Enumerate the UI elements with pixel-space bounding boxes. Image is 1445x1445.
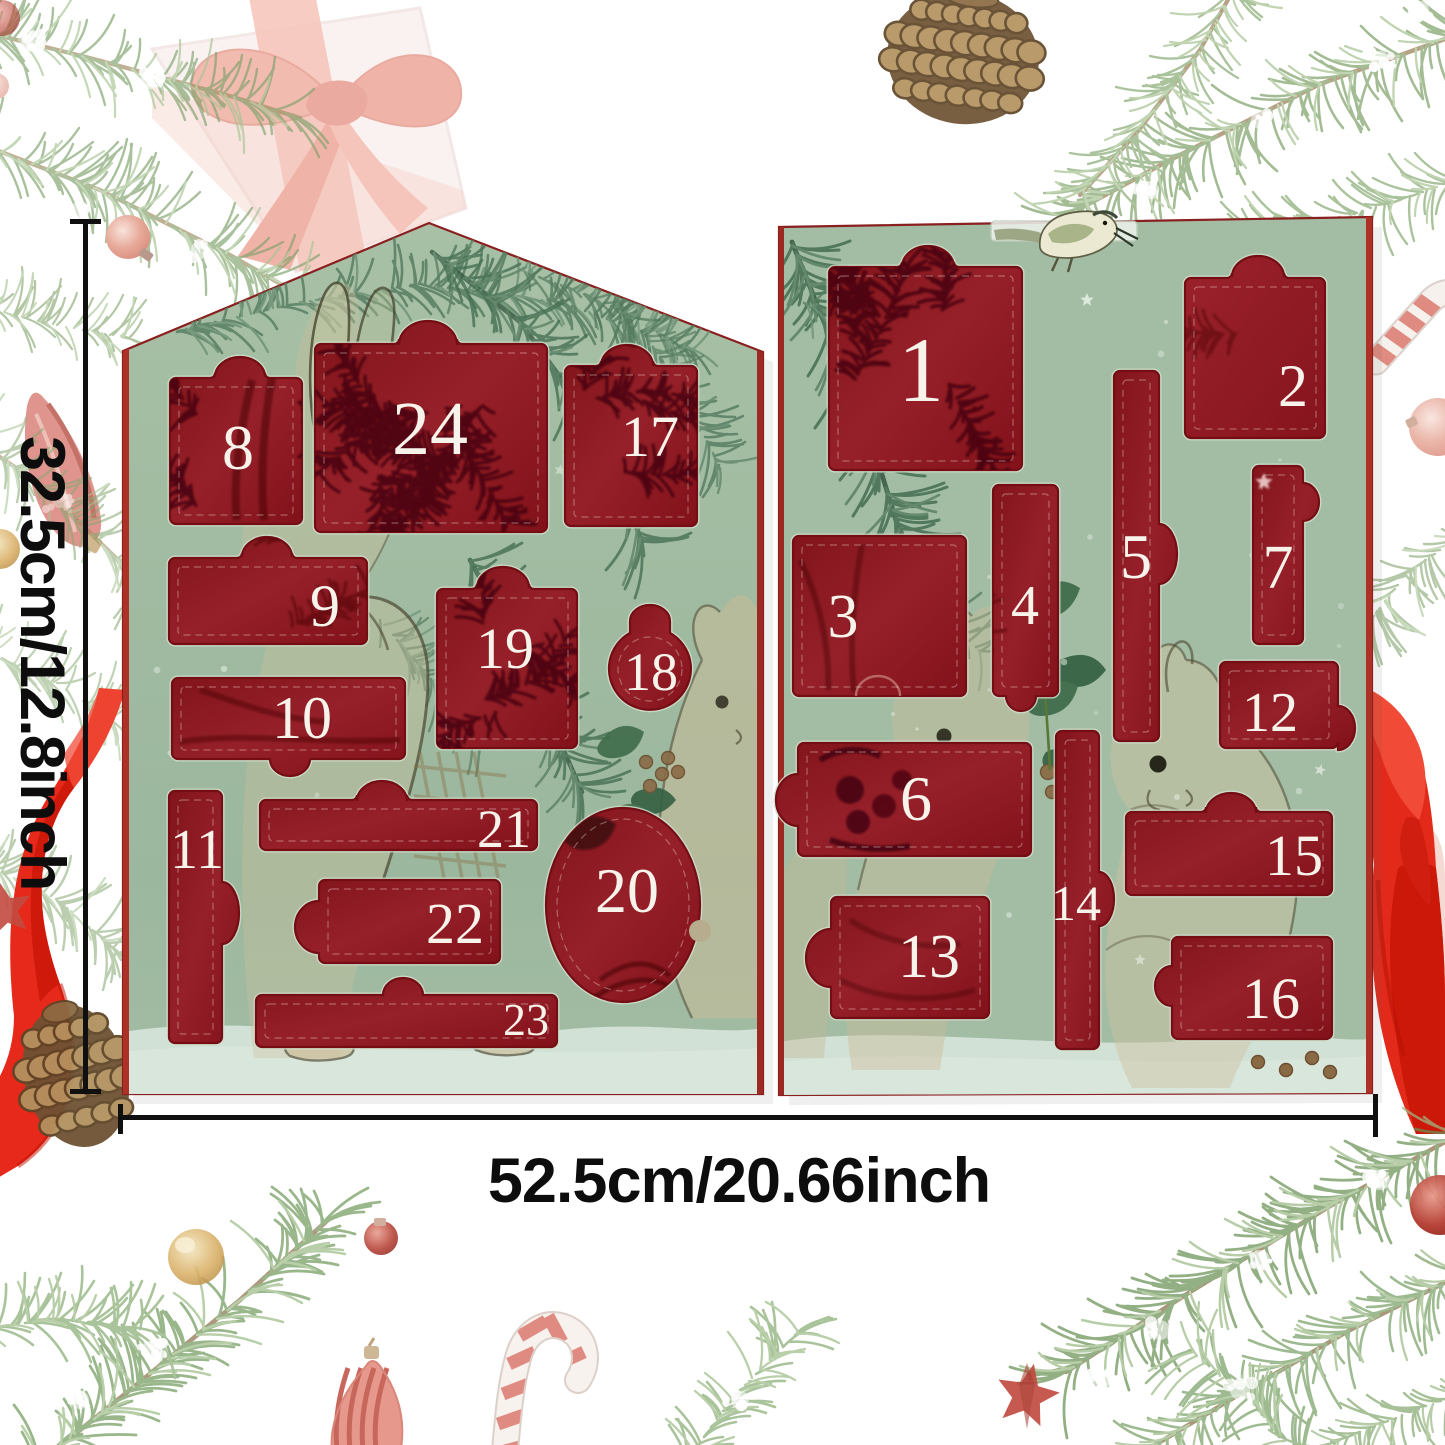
svg-text:8: 8 — [222, 412, 254, 483]
svg-text:4: 4 — [1011, 575, 1039, 637]
svg-text:14: 14 — [1051, 875, 1101, 931]
svg-text:15: 15 — [1265, 823, 1323, 888]
svg-text:1: 1 — [898, 319, 944, 421]
svg-text:21: 21 — [477, 799, 531, 859]
svg-text:24: 24 — [392, 387, 468, 471]
svg-text:2: 2 — [1278, 353, 1308, 419]
svg-text:16: 16 — [1242, 966, 1300, 1031]
svg-text:23: 23 — [503, 994, 549, 1045]
svg-text:13: 13 — [898, 923, 960, 991]
svg-text:11: 11 — [170, 819, 224, 881]
svg-text:5: 5 — [1120, 521, 1152, 592]
svg-text:22: 22 — [426, 891, 484, 956]
svg-text:10: 10 — [272, 685, 332, 751]
svg-text:32.5cm/12.8inch: 32.5cm/12.8inch — [7, 436, 77, 889]
svg-text:19: 19 — [476, 616, 534, 681]
svg-text:3: 3 — [828, 583, 859, 651]
svg-text:12: 12 — [1242, 682, 1298, 744]
svg-text:52.5cm/20.66inch: 52.5cm/20.66inch — [488, 1146, 990, 1216]
svg-text:6: 6 — [900, 763, 932, 834]
svg-text:20: 20 — [595, 855, 659, 926]
svg-text:7: 7 — [1263, 534, 1294, 602]
svg-text:9: 9 — [310, 573, 340, 639]
svg-text:18: 18 — [624, 642, 678, 702]
svg-text:17: 17 — [621, 404, 679, 469]
